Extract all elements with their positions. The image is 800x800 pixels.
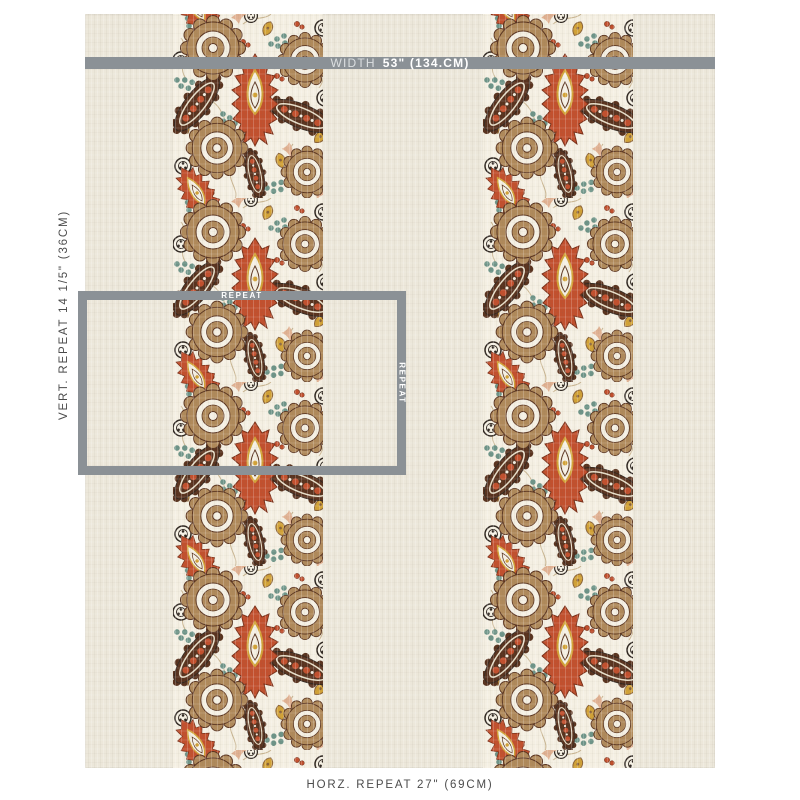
- horizontal-repeat-label: HORZ. REPEAT 27" (69CM): [307, 779, 494, 791]
- width-measurement-bar: WIDTH 53" (134.CM): [85, 57, 715, 69]
- width-value: 53" (134.CM): [383, 57, 470, 69]
- repeat-outline-box: REPEAT REPEAT: [78, 291, 406, 475]
- pattern-stripe-right: [483, 14, 633, 768]
- vertical-repeat-label: VERT. REPEAT 14 1/5" (36CM): [58, 210, 70, 420]
- repeat-box-right-label: REPEAT: [398, 362, 407, 403]
- repeat-box-top-label: REPEAT: [221, 291, 262, 300]
- product-image: WIDTH 53" (134.CM) REPEAT REPEAT VERT. R…: [0, 0, 800, 800]
- width-label: WIDTH: [330, 57, 375, 69]
